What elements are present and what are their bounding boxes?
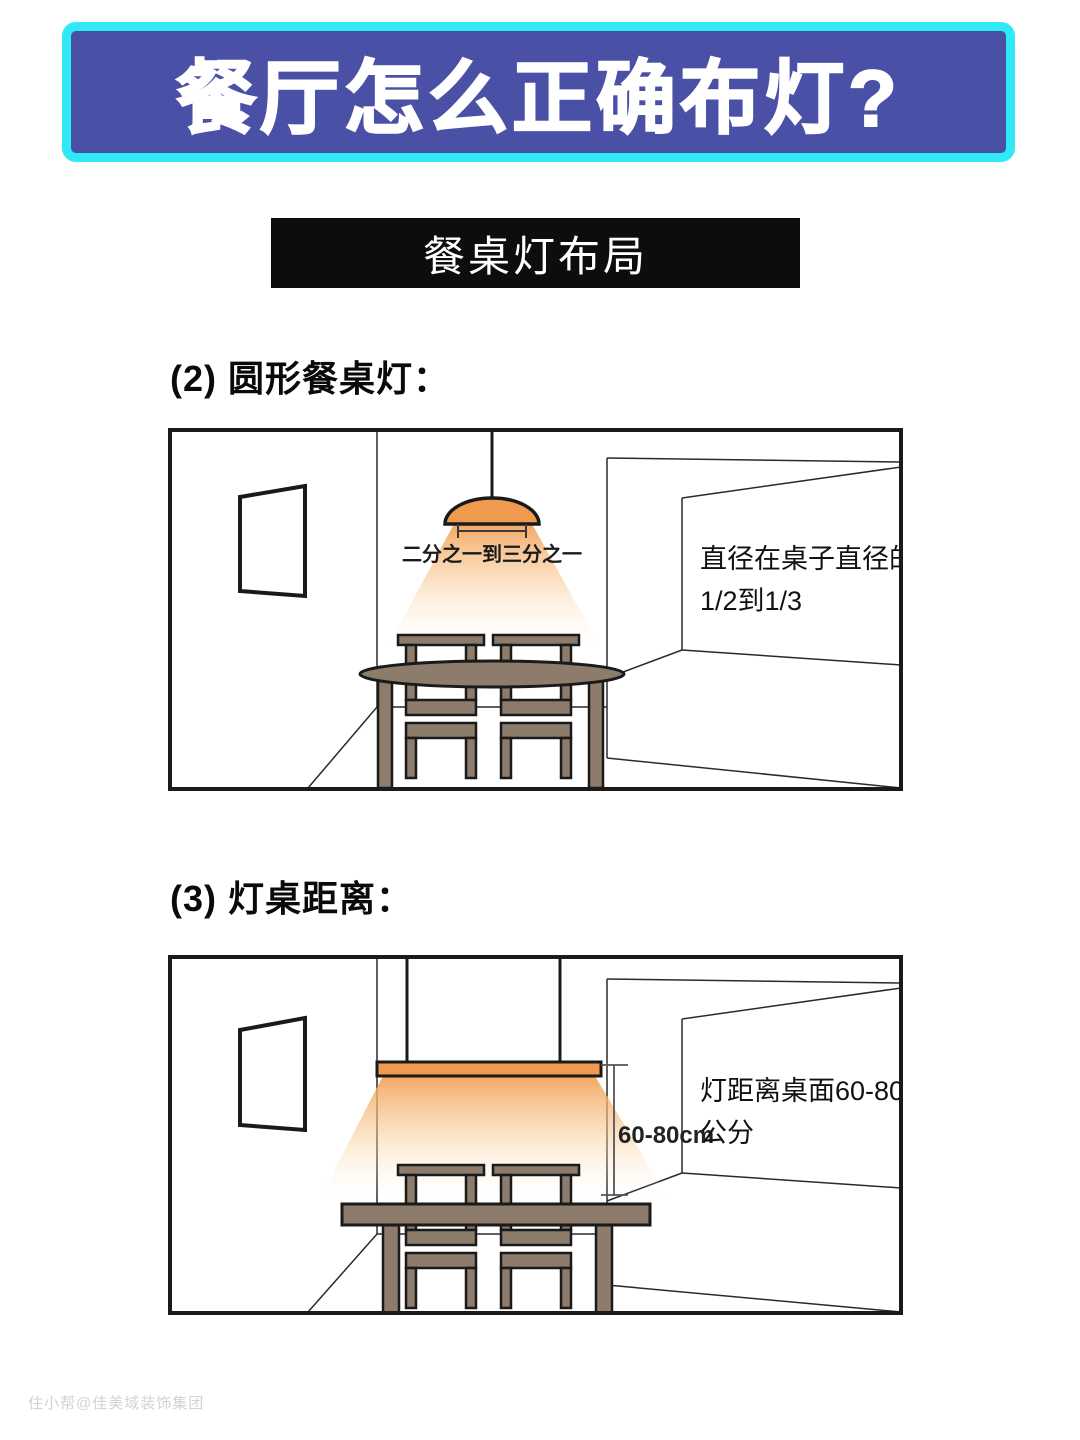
distance-note-line2: 公分 [700, 1118, 754, 1148]
lamp-width-label: 二分之一到三分之一 [402, 542, 582, 566]
diagram-lamp-table-distance: 60-80cm 灯距离桌面60-80 公分 [168, 955, 903, 1315]
section-heading-lamp-distance: (3) 灯桌距离： [170, 870, 413, 922]
light-cone [388, 524, 600, 646]
picture-frame [240, 486, 305, 596]
watermark: 住小帮@佳美域装饰集团 [28, 1392, 204, 1413]
picture-frame [240, 1018, 305, 1130]
dining-table [342, 1204, 650, 1313]
subtitle-banner: 餐桌灯布局 [271, 218, 800, 288]
diagram-round-table-lamp: 二分之一到三分之一 直径在桌子直径的 1/2到1/3 [168, 428, 903, 791]
chair [493, 635, 579, 778]
room-walls [308, 430, 901, 788]
subtitle-text: 餐桌灯布局 [423, 223, 648, 284]
linear-pendant-lamp [377, 1062, 601, 1076]
distance-note-line1: 灯距离桌面60-80 [700, 1076, 903, 1106]
diameter-note-line1: 直径在桌子直径的 [700, 544, 903, 574]
diameter-note-line2: 1/2到1/3 [700, 586, 802, 616]
section-heading-round-lamp: (2) 圆形餐桌灯： [170, 350, 450, 402]
infographic-page: 餐厅怎么正确布灯? 餐桌灯布局 (2) 圆形餐桌灯： [0, 0, 1080, 1440]
round-dining-table [360, 661, 624, 788]
light-cone [320, 1076, 668, 1198]
dome-pendant-lamp [445, 498, 539, 524]
page-title: 餐厅怎么正确布灯? [176, 34, 901, 150]
chair [398, 635, 484, 778]
title-banner: 餐厅怎么正确布灯? [62, 22, 1015, 162]
